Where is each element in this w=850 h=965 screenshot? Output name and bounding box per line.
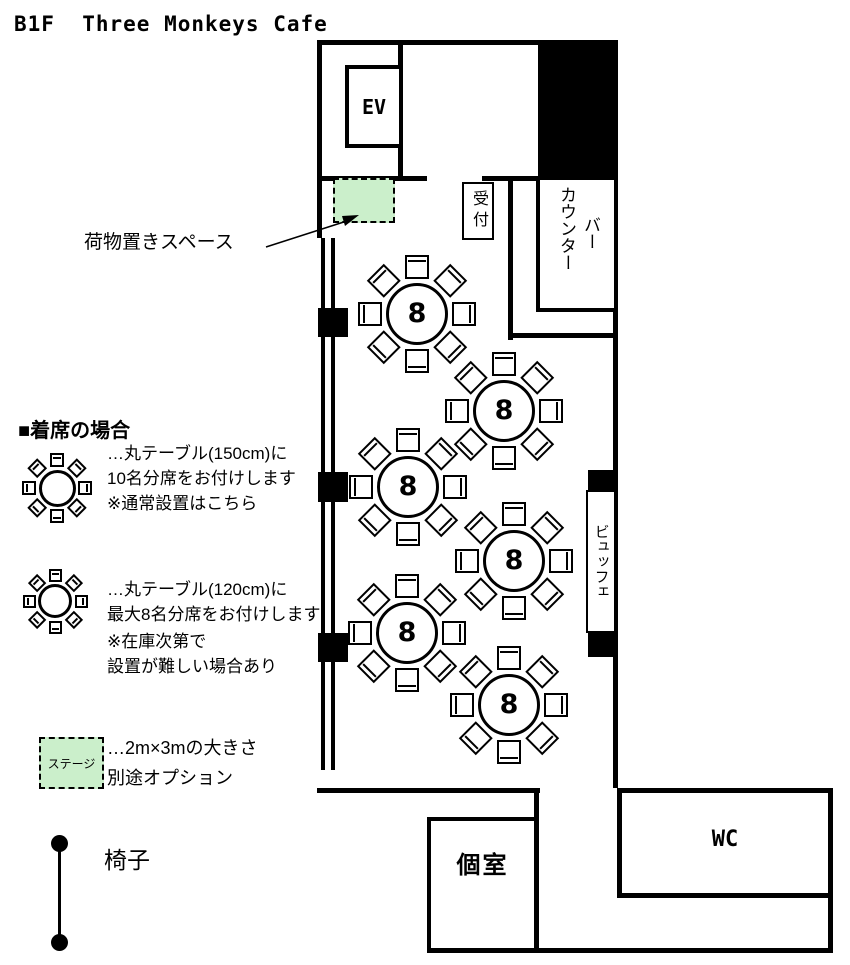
chair-icon (492, 352, 516, 376)
pillar-left-2 (318, 472, 348, 502)
chair-icon (539, 399, 563, 423)
floor-plan-page: B1F Three Monkeys Cafe ■着席の場合 …丸テーブル(150… (0, 0, 850, 965)
legend-150-line3: ※通常設置はこちら (107, 491, 257, 516)
wall-counter-left (508, 176, 513, 340)
pillar-left-3 (318, 633, 348, 662)
chair-icon (50, 453, 64, 467)
chair-icon (78, 481, 92, 495)
chair-icon (50, 509, 64, 523)
chair-symbol-line (58, 843, 61, 943)
elevator-box: EV (345, 65, 403, 148)
chair-icon (49, 569, 62, 582)
window-wall-3 (321, 502, 335, 633)
private-room-box: 個室 (427, 817, 538, 953)
window-wall-1 (321, 238, 335, 308)
chair-legend-label: 椅子 (104, 841, 150, 875)
legend-120-line1: …丸テーブル(120cm)に (107, 577, 287, 602)
chair-icon (497, 740, 521, 764)
elevator-label: EV (362, 95, 386, 119)
table-top (38, 584, 72, 618)
chair-icon (502, 502, 526, 526)
chair-icon (452, 302, 476, 326)
window-wall-4 (321, 662, 335, 770)
chair-icon (23, 595, 36, 608)
reception-label: 受付 (466, 190, 490, 232)
private-room-label: 個室 (457, 845, 509, 880)
reception-box: 受付 (462, 182, 494, 240)
luggage-area-box (333, 178, 395, 223)
chair-icon (396, 428, 420, 452)
chair-icon (455, 549, 479, 573)
buffet-label: ビュッフェ (591, 524, 612, 599)
pillar-left-1 (318, 308, 348, 337)
wall-right (613, 40, 618, 788)
legend-120-line4: 設置が難しい場合あり (107, 654, 277, 679)
table-top: 8 (386, 283, 448, 345)
legend-heading: ■着席の場合 (18, 414, 130, 443)
chair-icon (544, 693, 568, 717)
chair-icon (405, 255, 429, 279)
chair-icon (22, 481, 36, 495)
table-top: 8 (377, 456, 439, 518)
pillar-buffet-top (588, 470, 618, 490)
chair-icon (358, 302, 382, 326)
chair-icon (75, 595, 88, 608)
wall-counter-bottom (508, 333, 618, 338)
chair-icon (395, 574, 419, 598)
wc-room-box: WC (617, 788, 833, 898)
table-top: 8 (478, 674, 540, 736)
chair-icon (450, 693, 474, 717)
chair-icon (492, 446, 516, 470)
chair-icon (49, 621, 62, 634)
table-top: 8 (473, 380, 535, 442)
wall-wc-right-lower (828, 893, 833, 953)
table-top: 8 (483, 530, 545, 592)
legend-120-line2: 最大8名分席をお付けします (107, 602, 320, 627)
chair-icon (396, 522, 420, 546)
table-top (39, 470, 76, 507)
chair-icon (395, 668, 419, 692)
chair-symbol-dot-bottom (51, 934, 68, 951)
chair-icon (549, 549, 573, 573)
pillar-top-right (538, 42, 617, 176)
chair-icon (349, 475, 373, 499)
wall-bottom-outer (427, 948, 833, 953)
counter-label: カウンター (554, 186, 579, 271)
wall-left-upper (317, 40, 322, 238)
buffet-box: ビュッフェ (586, 490, 616, 633)
chair-icon (445, 399, 469, 423)
wc-label: WC (712, 827, 739, 852)
legend-stage-line1: …2m×3mの大きさ (107, 733, 258, 763)
legend-150-line2: 10名分席をお付けします (107, 466, 296, 491)
chair-icon (497, 646, 521, 670)
stage-sample-label: ステージ (48, 755, 96, 772)
chair-icon (348, 621, 372, 645)
pillar-buffet-bottom (588, 633, 618, 657)
chair-icon (502, 596, 526, 620)
legend-120-line3: ※在庫次第で (107, 629, 206, 654)
chair-symbol-dot-top (51, 835, 68, 852)
legend-150-line1: …丸テーブル(150cm)に (107, 441, 287, 466)
window-wall-2 (321, 337, 335, 472)
chair-icon (443, 475, 467, 499)
stage-sample-box: ステージ (39, 737, 104, 789)
wall-bottom-main (317, 788, 540, 793)
luggage-area-label: 荷物置きスペース (84, 227, 234, 254)
table-top: 8 (376, 602, 438, 664)
bar-label: バー (578, 216, 603, 250)
chair-icon (405, 349, 429, 373)
legend-stage-line2: 別途オプション (107, 763, 233, 793)
chair-icon (442, 621, 466, 645)
page-title: B1F Three Monkeys Cafe (14, 12, 328, 36)
